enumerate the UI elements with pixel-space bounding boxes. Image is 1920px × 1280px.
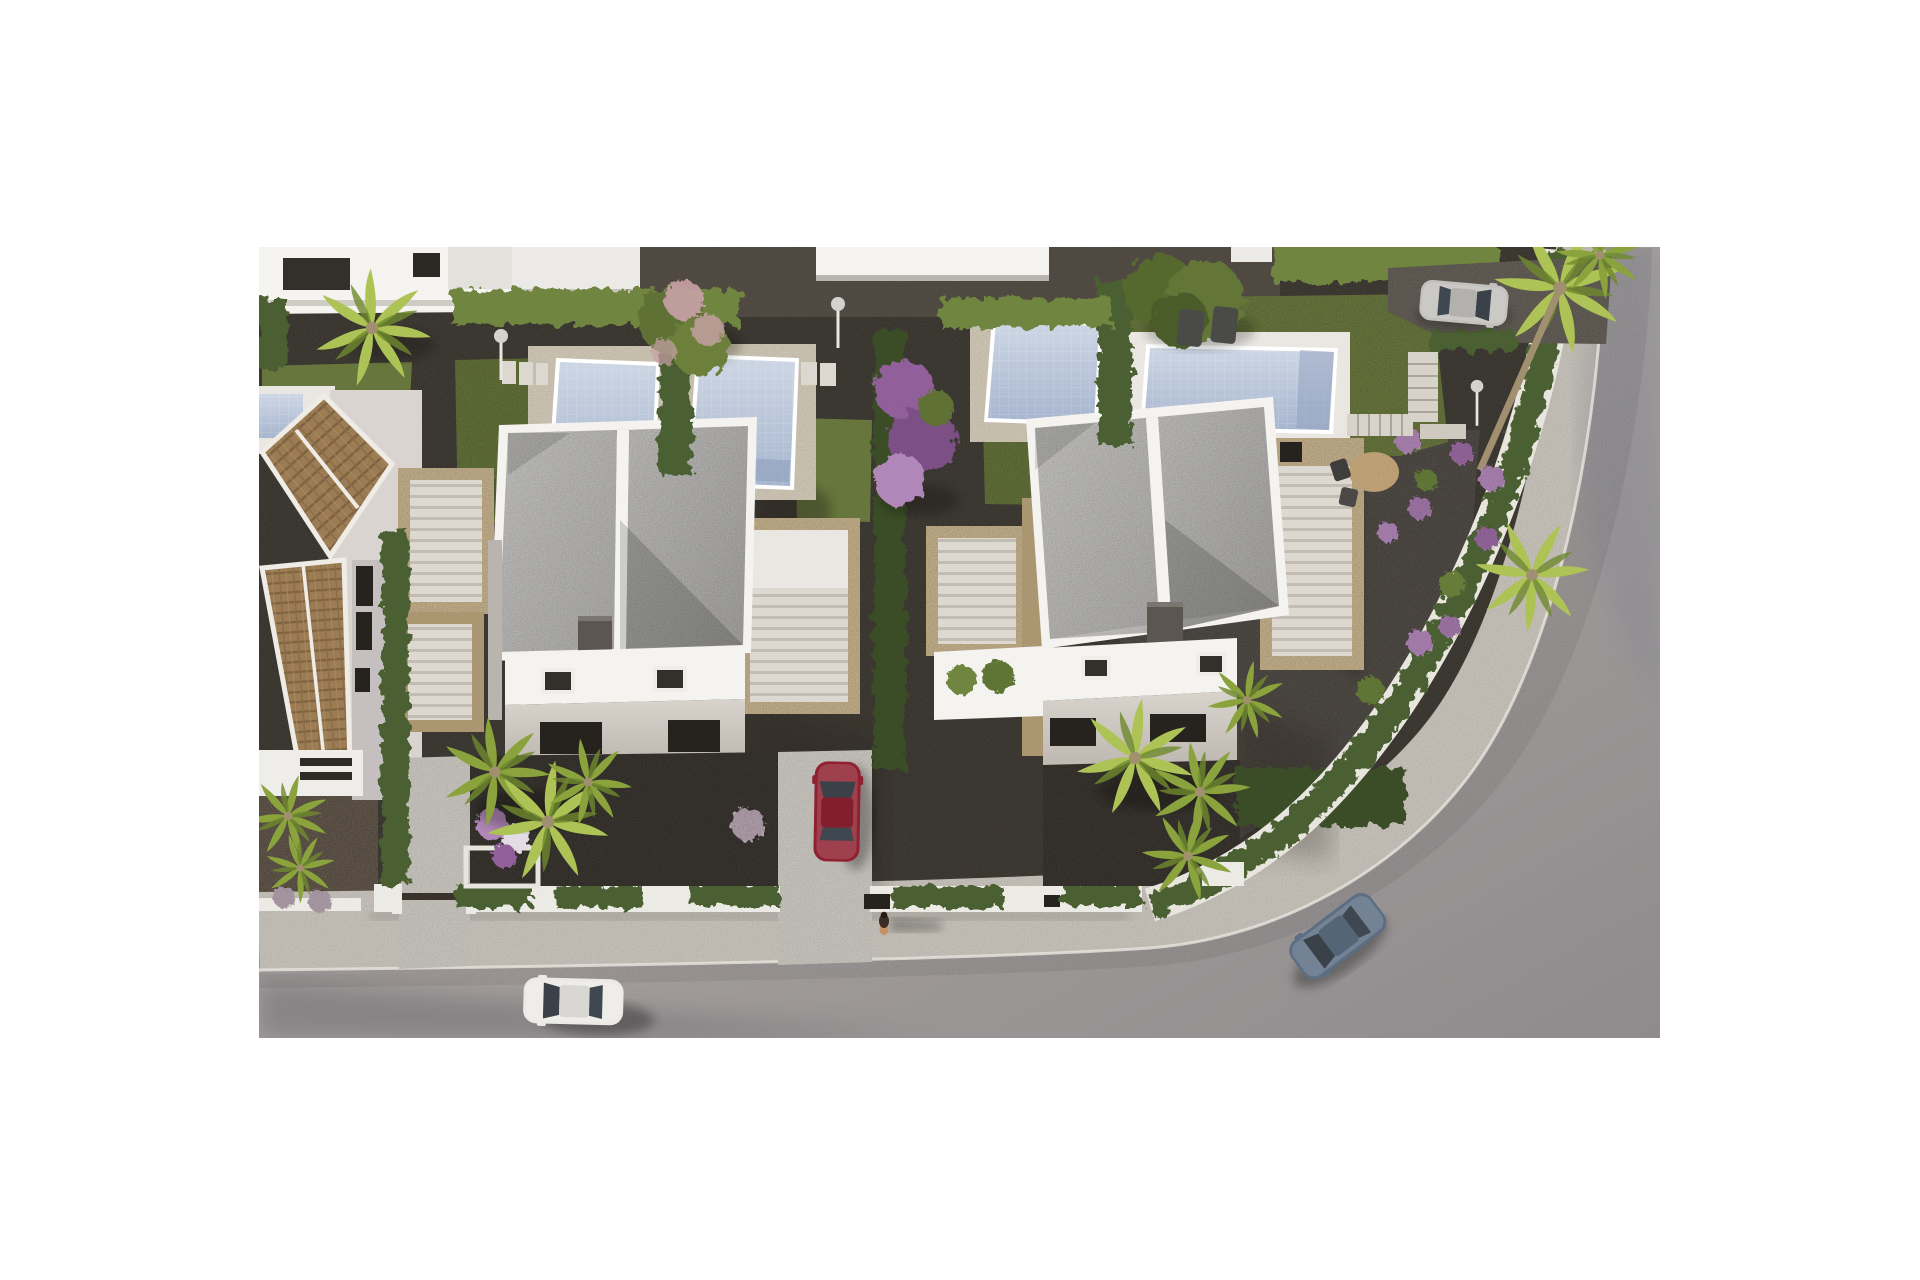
pool-a-slabs [502,361,548,385]
villa-2-left-stairs [926,498,1046,756]
aerial-render [0,0,1920,1280]
render-page [0,0,1920,1280]
villa-2-chimney [1147,602,1183,642]
wall-shadow-on-sidewalk [370,912,1130,920]
back-building-2 [512,247,640,295]
villa-1-right-terrace [738,518,860,714]
villa-1-left-stairs [396,468,494,732]
villa-2-roof [1026,397,1289,649]
carport [259,750,363,796]
villa-1-roof [489,417,757,661]
back-building-4 [1231,247,1272,262]
red-car [811,761,874,870]
back-building-3 [816,247,1049,279]
